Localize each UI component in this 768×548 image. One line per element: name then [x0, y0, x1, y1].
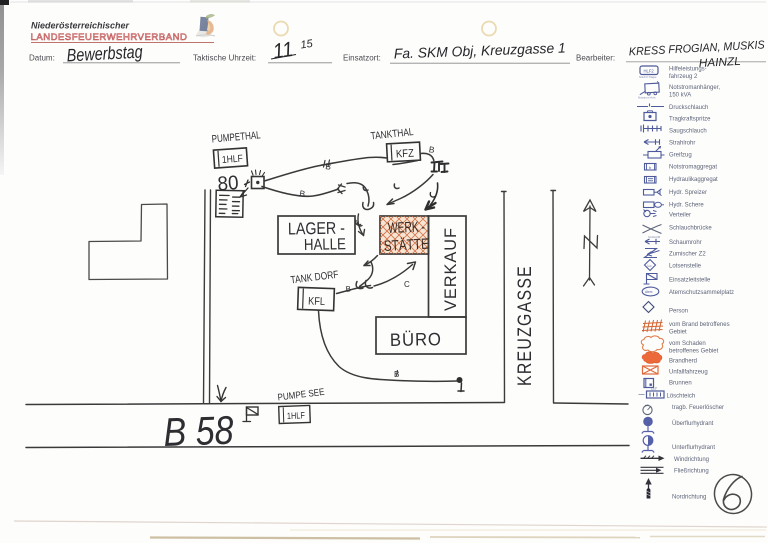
svg-text:Löschteich: Löschteich	[667, 394, 696, 400]
svg-text:Brunnen: Brunnen	[669, 381, 692, 387]
svg-text:betroffenes Gebiet: betroffenes Gebiet	[669, 349, 719, 355]
svg-text:Atemschutzsammelplatz: Atemschutzsammelplatz	[669, 290, 734, 296]
svg-text:Tragkraftspritze: Tragkraftspritze	[669, 117, 711, 123]
svg-text:Einsatzleitstelle: Einsatzleitstelle	[669, 278, 711, 284]
svg-text:KFL: KFL	[308, 296, 325, 309]
svg-text:Strahlrohr: Strahlrohr	[669, 141, 695, 147]
svg-text:Notstromanhänger,: Notstromanhänger,	[669, 85, 720, 91]
svg-text:Hydr. Schere: Hydr. Schere	[669, 203, 704, 209]
svg-text:NöLFV-Träger: NöLFV-Träger	[639, 75, 657, 79]
svg-text:BÜRO: BÜRO	[390, 329, 442, 350]
svg-text:C: C	[404, 280, 410, 289]
svg-text:SCHAUM: SCHAUM	[648, 235, 661, 239]
svg-text:WERK -: WERK -	[388, 219, 426, 237]
svg-text:HLF2: HLF2	[644, 69, 655, 74]
svg-text:Nordrichtung: Nordrichtung	[672, 495, 706, 501]
svg-text:Fließrichtung: Fließrichtung	[674, 469, 709, 475]
svg-text:Schaumrohr: Schaumrohr	[669, 240, 702, 246]
svg-text:Lotsenstelle: Lotsenstelle	[669, 264, 702, 270]
svg-text:1HLF: 1HLF	[222, 154, 244, 166]
svg-text:tragb. Feuerlöscher: tragb. Feuerlöscher	[672, 405, 724, 411]
svg-text:HALLE: HALLE	[304, 236, 346, 254]
svg-text:Einsatzort:: Einsatzort:	[343, 54, 381, 63]
svg-text:Datum:: Datum:	[29, 54, 55, 63]
svg-text:Bearbeiter:: Bearbeiter:	[576, 54, 615, 63]
svg-text:Brandherd: Brandherd	[669, 359, 697, 365]
svg-text:vom Brand betroffenes: vom Brand betroffenes	[669, 322, 730, 328]
svg-text:Niederösterreichischer: Niederösterreichischer	[31, 21, 130, 31]
svg-text:80: 80	[217, 172, 239, 195]
svg-text:Verteiler: Verteiler	[669, 213, 691, 219]
svg-text:Taktische Uhrzeit:: Taktische Uhrzeit:	[193, 54, 256, 63]
svg-text:Notstrom-Anh.: Notstrom-Anh.	[638, 96, 656, 100]
svg-text:Hilfeleistungs-: Hilfeleistungs-	[669, 67, 707, 73]
svg-text:LANDESFEUERWEHRVERBAND: LANDESFEUERWEHRVERBAND	[31, 32, 188, 43]
svg-text:VERKAUF: VERKAUF	[441, 227, 460, 311]
svg-text:Bewerbstag: Bewerbstag	[66, 42, 143, 66]
svg-text:1HLF: 1HLF	[287, 410, 306, 421]
svg-text:Unfallfahrzeug: Unfallfahrzeug	[669, 370, 708, 376]
svg-text:Windrichtung: Windrichtung	[674, 457, 709, 463]
svg-text:Unterflurhydrant: Unterflurhydrant	[672, 445, 715, 451]
svg-text:vom Schaden: vom Schaden	[669, 341, 706, 347]
svg-text:KREUZGASSE: KREUZGASSE	[515, 265, 536, 386]
svg-text:Saugschlauch: Saugschlauch	[669, 129, 707, 135]
svg-text:11: 11	[271, 38, 294, 64]
svg-text:150 kVA: 150 kVA	[669, 93, 691, 99]
svg-text:Druckschlauch: Druckschlauch	[669, 105, 708, 111]
svg-text:Gebiet: Gebiet	[669, 330, 687, 336]
svg-text:Person: Person	[669, 309, 688, 315]
svg-text:fahrzeug 2: fahrzeug 2	[669, 74, 698, 80]
svg-text:123: 123	[651, 387, 656, 391]
svg-text:STÄTTE: STÄTTE	[383, 236, 429, 255]
svg-text:Lo: Lo	[648, 264, 652, 268]
svg-text:Hydraulikaggregat: Hydraulikaggregat	[669, 177, 718, 183]
svg-text:Schlauchbrücke: Schlauchbrücke	[669, 226, 712, 232]
svg-text:B 58: B 58	[163, 409, 235, 455]
svg-text:Atem: Atem	[645, 290, 653, 294]
svg-text:KFZ: KFZ	[396, 148, 415, 161]
svg-text:Überflurhydrant: Überflurhydrant	[672, 420, 714, 427]
svg-text:Greifzug: Greifzug	[669, 153, 692, 159]
svg-text:Notstromaggregat: Notstromaggregat	[669, 165, 717, 171]
svg-text:Zumischer Z2: Zumischer Z2	[669, 252, 706, 258]
svg-text:Hydr. Spreizer: Hydr. Spreizer	[669, 190, 707, 196]
